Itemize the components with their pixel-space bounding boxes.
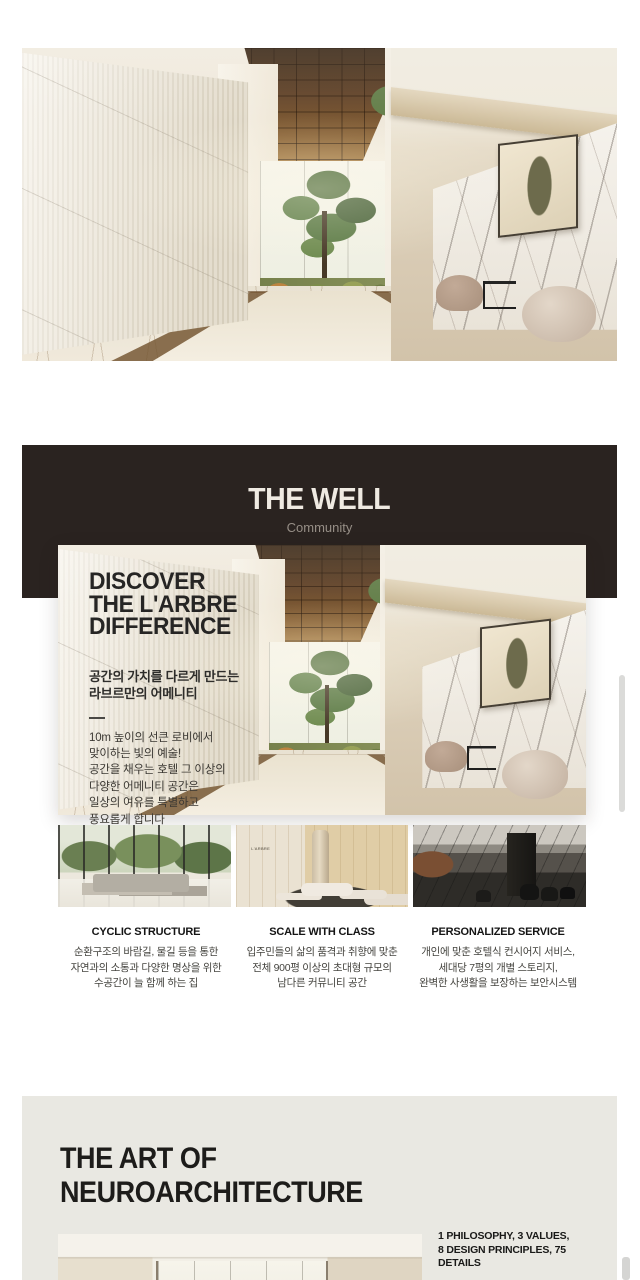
card-subheading-line: 라브르만의 어메니티 <box>89 685 299 703</box>
neuro-stats: 1 PHILOSOPHY, 3 VALUES, 8 DESIGN PRINCIP… <box>438 1230 610 1271</box>
card-subheading: 공간의 가치를 다르게 만드는 라브르만의 어메니티 <box>89 668 299 703</box>
card-text-overlay: DISCOVER THE L'ARBRE DIFFERENCE 공간의 가치를 … <box>89 545 299 828</box>
feature-scale-with-class: SCALE WITH CLASS 입주민들의 삶의 품격과 취향에 맞춘 전체 … <box>234 926 410 992</box>
feature-line: 완벽한 사생활을 보장하는 보안시스템 <box>410 976 586 992</box>
feature-description: 입주민들의 삶의 품격과 취향에 맞춘 전체 900평 이상의 초대형 규모의 … <box>234 945 410 992</box>
hero-image <box>22 48 617 361</box>
card-divider <box>89 717 105 719</box>
well-title: THE WELL <box>248 481 390 517</box>
card-body-line: 10m 높이의 선큰 로비에서 <box>89 730 299 746</box>
feature-description: 순환구조의 바람길, 물길 등을 통한 자연과의 소통과 다양한 명상을 위한 … <box>58 945 234 992</box>
feature-captions: CYCLIC STRUCTURE 순환구조의 바람길, 물길 등을 통한 자연과… <box>58 926 586 992</box>
feature-title: SCALE WITH CLASS <box>234 926 410 938</box>
card-heading: DISCOVER THE L'ARBRE DIFFERENCE <box>89 571 299 639</box>
neuro-text-column: 1 PHILOSOPHY, 3 VALUES, 8 DESIGN PRINCIP… <box>438 1230 610 1280</box>
neuro-title-line: NEUROARCHITECTURE <box>60 1176 363 1210</box>
feature-line: 전체 900평 이상의 초대형 규모의 <box>234 961 410 977</box>
feature-thumbnails: L'ARBRE <box>58 825 586 907</box>
feature-line: 순환구조의 바람길, 물길 등을 통한 <box>58 945 234 961</box>
feature-line: 개인에 맞춘 호텔식 컨시어지 서비스, <box>410 945 586 961</box>
card-body-line: 일상의 여유를 특별하고 <box>89 795 299 811</box>
larbre-wall-sign: L'ARBRE <box>251 846 270 851</box>
card-body-line: 맞이하는 빛의 예술! <box>89 746 299 762</box>
neuro-stats-line: 1 PHILOSOPHY, 3 VALUES, <box>438 1230 610 1244</box>
thumbnail-personalized-service <box>413 825 586 907</box>
feature-line: 자연과의 소통과 다양한 명상을 위한 <box>58 961 234 977</box>
card-body-line: 공간을 채우는 호텔 그 이상의 <box>89 762 299 778</box>
scrollbar-lower[interactable] <box>622 1257 630 1280</box>
page-root: { "colors": { "page_bg": "#FFFFFF", "ban… <box>0 0 640 1280</box>
neuro-image <box>58 1234 422 1280</box>
feature-line: 수공간이 늘 함께 하는 집 <box>58 976 234 992</box>
card-heading-line: DIFFERENCE <box>89 616 231 639</box>
neuro-stats-line: 8 DESIGN PRINCIPLES, 75 DETAILS <box>438 1244 610 1271</box>
card-body: 10m 높이의 선큰 로비에서 맞이하는 빛의 예술! 공간을 채우는 호텔 그… <box>89 730 299 828</box>
card-body-line: 다양한 어메니티 공간은 <box>89 779 299 795</box>
feature-cyclic-structure: CYCLIC STRUCTURE 순환구조의 바람길, 물길 등을 통한 자연과… <box>58 926 234 992</box>
neuro-title: THE ART OF NEUROARCHITECTURE <box>60 1142 397 1210</box>
neuro-section: THE ART OF NEUROARCHITECTURE 1 PHILOSOPH… <box>22 1096 617 1280</box>
feature-line: 남다른 커뮤니티 공간 <box>234 976 410 992</box>
well-subtitle: Community <box>22 520 617 535</box>
lobby-rendering <box>22 48 617 361</box>
feature-title: PERSONALIZED SERVICE <box>410 926 586 938</box>
thumbnail-cyclic-structure <box>58 825 231 907</box>
card-body-line: 풍요롭게 합니다 <box>89 812 299 828</box>
feature-line: 입주민들의 삶의 품격과 취향에 맞춘 <box>234 945 410 961</box>
neuro-title-line: THE ART OF <box>60 1142 216 1176</box>
card-subheading-line: 공간의 가치를 다르게 만드는 <box>89 668 299 686</box>
feature-line: 세대당 7평의 개별 스토리지, <box>410 961 586 977</box>
thumbnail-scale-with-class: L'ARBRE <box>236 825 409 907</box>
discover-card: DISCOVER THE L'ARBRE DIFFERENCE 공간의 가치를 … <box>58 545 586 815</box>
feature-title: CYCLIC STRUCTURE <box>58 926 234 938</box>
light-vignette <box>22 48 617 361</box>
feature-personalized-service: PERSONALIZED SERVICE 개인에 맞춘 호텔식 컨시어지 서비스… <box>410 926 586 992</box>
scrollbar-upper[interactable] <box>619 675 625 812</box>
feature-description: 개인에 맞춘 호텔식 컨시어지 서비스, 세대당 7평의 개별 스토리지, 완벽… <box>410 945 586 992</box>
